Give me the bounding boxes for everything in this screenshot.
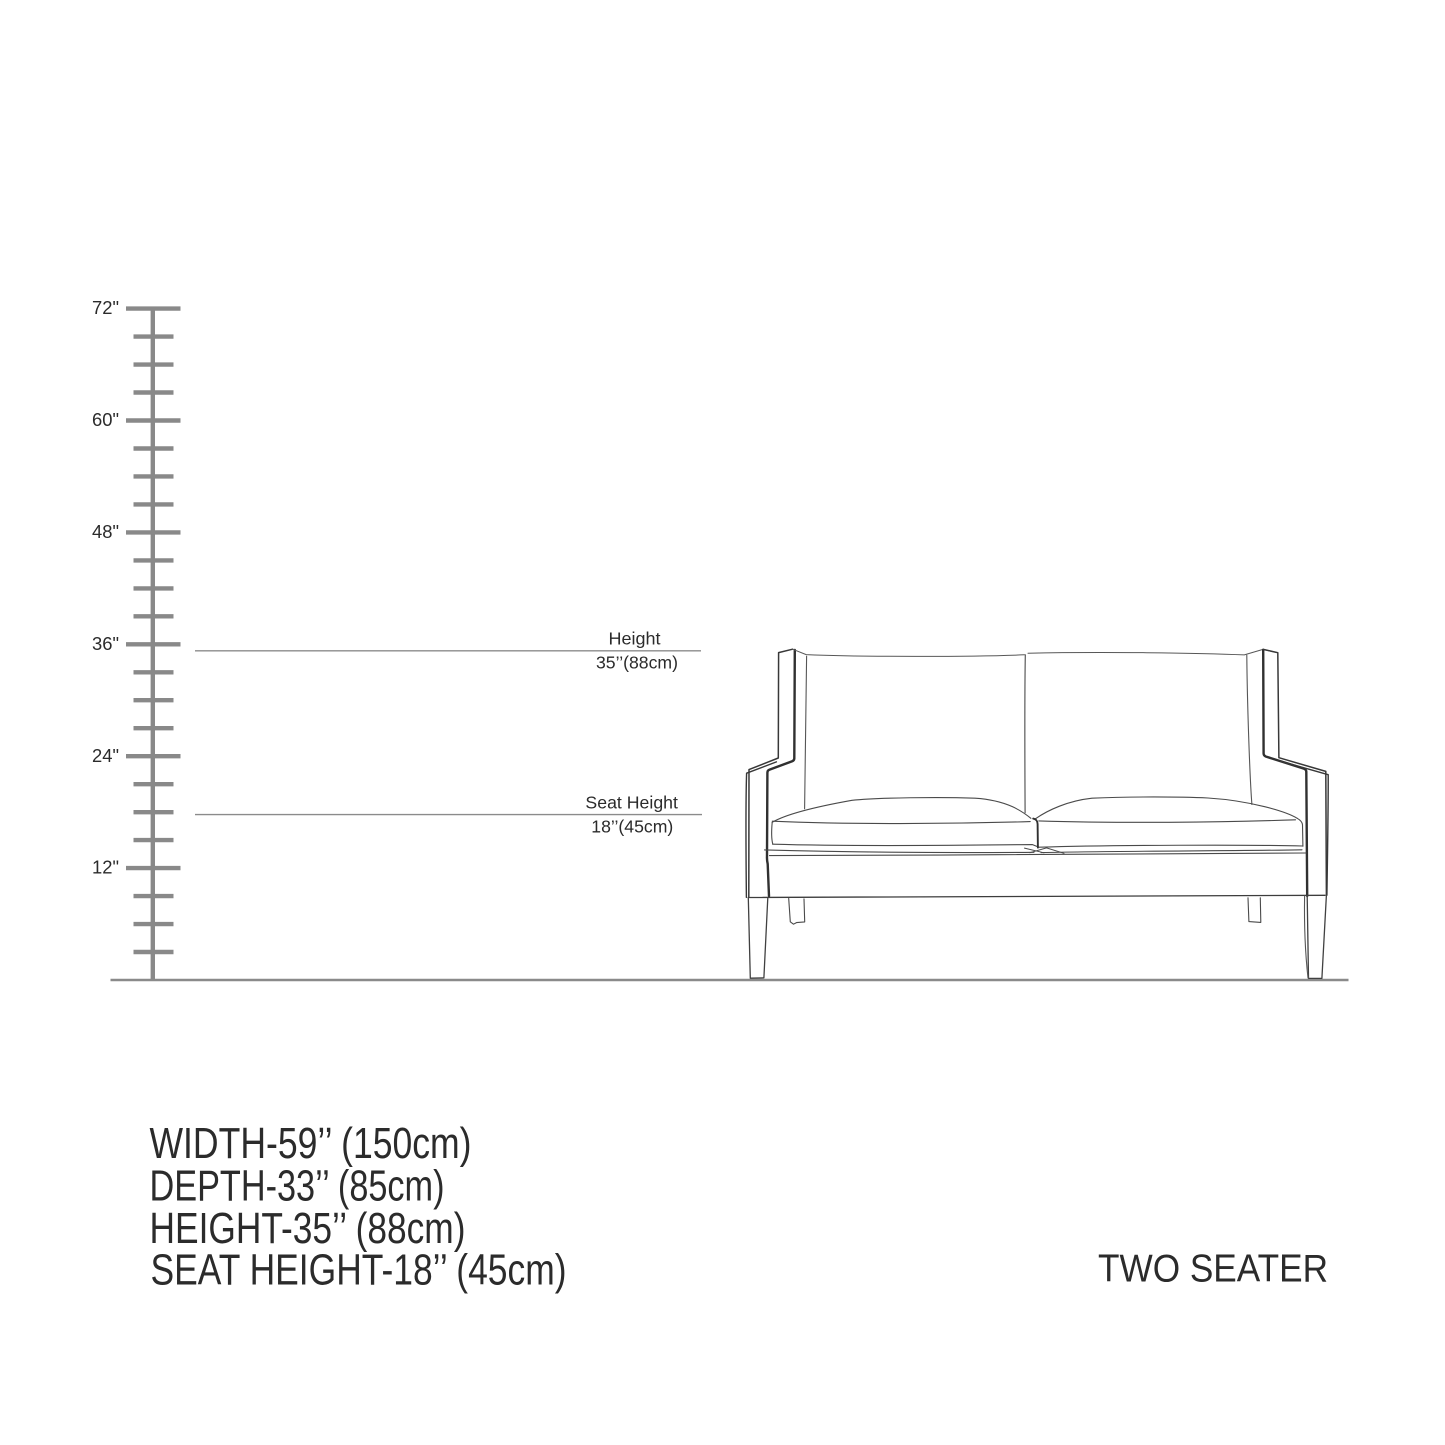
svg-text:TWO SEATER: TWO SEATER [1098,1247,1328,1290]
svg-text:72": 72" [92,297,119,318]
svg-text:SEAT HEIGHT-18’’ (45cm): SEAT HEIGHT-18’’ (45cm) [151,1246,567,1294]
svg-text:12": 12" [92,857,119,878]
svg-text:24": 24" [92,745,119,766]
svg-text:35’’(88cm): 35’’(88cm) [596,653,678,673]
svg-text:Height: Height [609,628,661,648]
svg-text:48": 48" [92,521,119,542]
svg-text:36": 36" [92,633,119,654]
svg-text:DEPTH-33’’ (85cm): DEPTH-33’’ (85cm) [150,1162,445,1210]
svg-text:18’’(45cm): 18’’(45cm) [591,816,673,836]
svg-text:60": 60" [92,409,119,430]
svg-text:WIDTH-59’’ (150cm): WIDTH-59’’ (150cm) [150,1120,472,1168]
svg-text:Seat Height: Seat Height [585,793,678,813]
